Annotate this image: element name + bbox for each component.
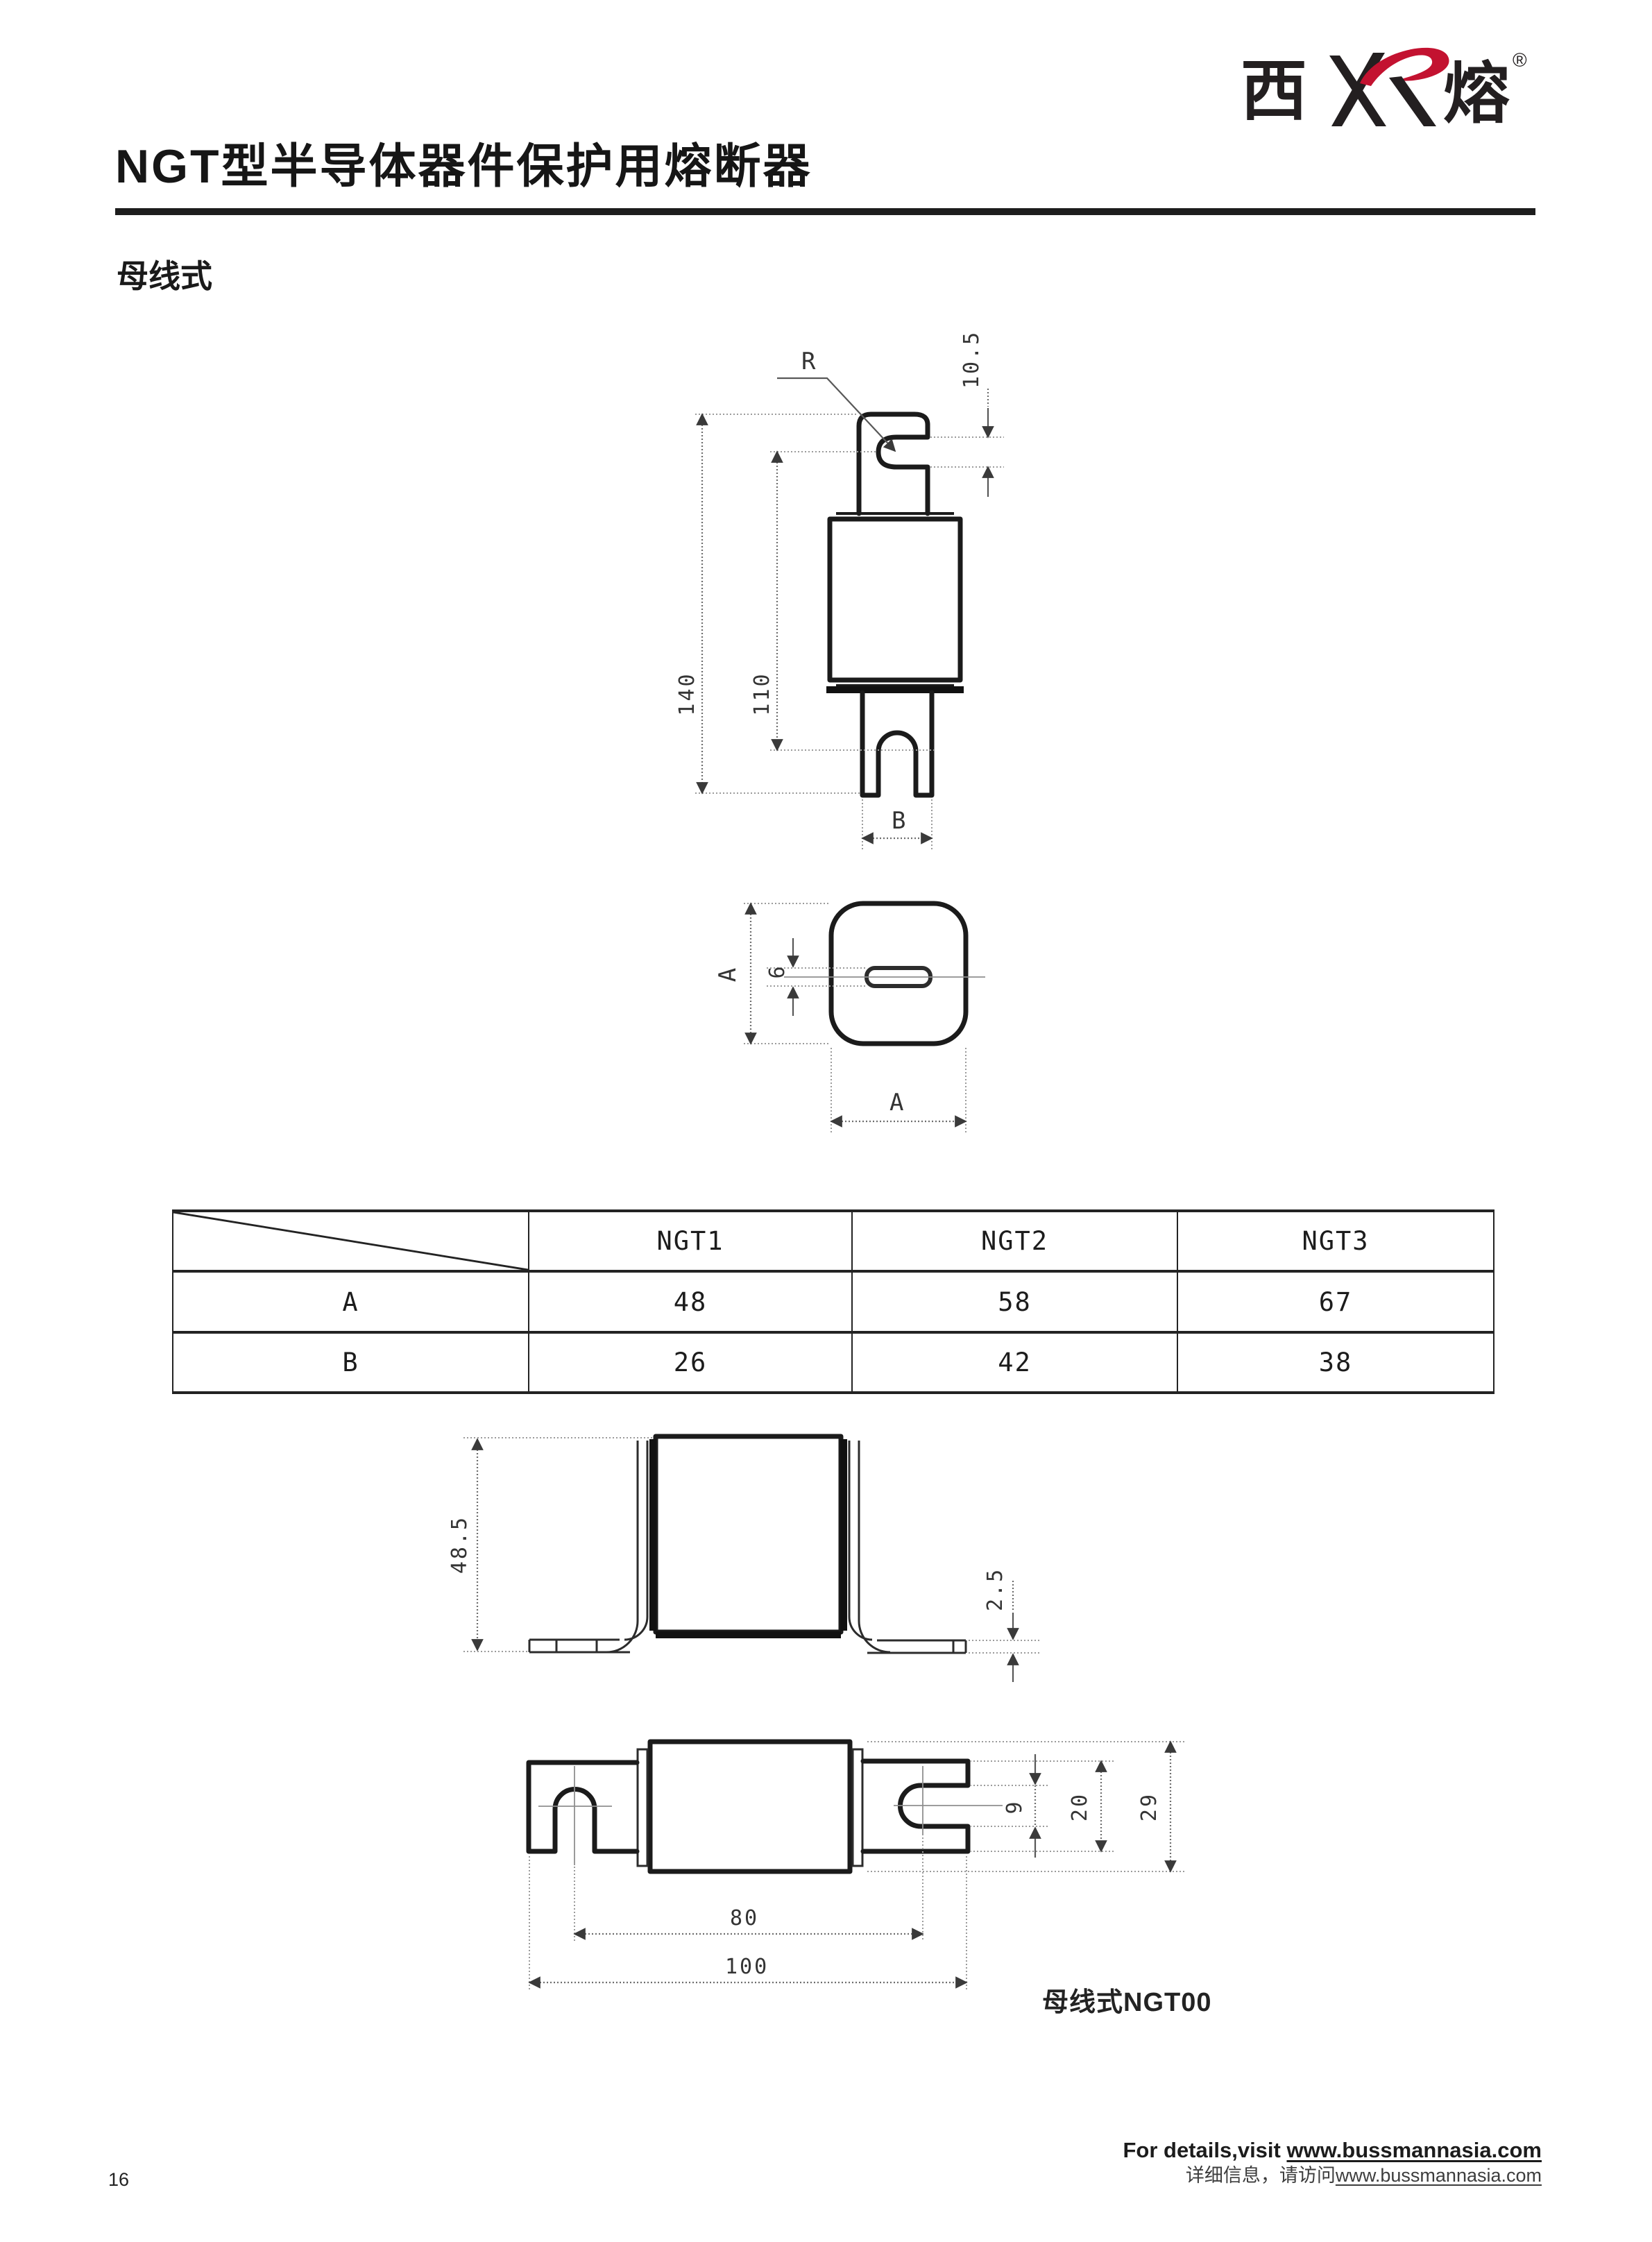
table-cell: 38 xyxy=(1177,1332,1494,1393)
catalog-page: 西 熔 ® NGT型半导体器件保护用熔断器 母线式 R xyxy=(0,0,1652,2242)
logo-r-leg xyxy=(1389,76,1436,126)
figure-bracket-view: 48.5 2.5 xyxy=(430,1416,1055,1693)
dim-label-overall-length: 100 xyxy=(725,1955,769,1979)
table-row: B 26 42 38 xyxy=(173,1332,1494,1393)
dim-label-a-bottom: A xyxy=(889,1089,905,1116)
footer-cn-url[interactable]: www.bussmannasia.com xyxy=(1336,2165,1542,2186)
left-ferrule xyxy=(638,1749,647,1866)
fuse-body-front xyxy=(656,1436,841,1632)
dim-label-foot-thickness: 2.5 xyxy=(983,1568,1007,1611)
row-label: A xyxy=(173,1271,529,1332)
right-blade-outer xyxy=(859,1441,890,1652)
column-header: NGT3 xyxy=(1177,1211,1494,1271)
table-row: A 48 58 67 xyxy=(173,1271,1494,1332)
table-cell: 58 xyxy=(852,1271,1177,1332)
section-subtitle: 母线式 xyxy=(117,251,212,297)
table-cell: 48 xyxy=(529,1271,852,1332)
diagonal-header-cell xyxy=(173,1211,529,1271)
brand-logo: 西 熔 ® xyxy=(1235,39,1533,130)
right-ferrule xyxy=(853,1749,862,1866)
dim-label-overall-height: 140 xyxy=(675,672,699,715)
dim-label-blade-width: B xyxy=(892,807,907,835)
logo-xr-mark xyxy=(1329,48,1449,126)
figure-caption: 母线式NGT00 xyxy=(1042,1980,1211,2019)
column-header: NGT2 xyxy=(852,1211,1177,1271)
table-cell: 67 xyxy=(1177,1271,1494,1332)
dim-label-slot-width: 6 xyxy=(765,964,790,978)
dim-label-body-height: 29 xyxy=(1137,1792,1161,1821)
dim-label-a-side: A xyxy=(714,967,742,982)
figure-ngt00-side-view: 9 20 29 80 100 xyxy=(472,1686,1249,2019)
dim-label-notch-span: 80 xyxy=(730,1906,759,1930)
dim-label-bracket-height: 48.5 xyxy=(448,1515,472,1574)
column-header: NGT1 xyxy=(529,1211,852,1271)
row-label: B xyxy=(173,1332,529,1393)
footer-line-cn: 详细信息，请访问www.bussmannasia.com xyxy=(1123,2164,1542,2188)
page-title: NGT型半导体器件保护用熔断器 xyxy=(115,128,812,196)
table-cell: 26 xyxy=(529,1332,852,1393)
top-view-body xyxy=(831,903,966,1044)
fuse-bottom-blade xyxy=(862,693,932,795)
figure-side-and-top-view: R 10.5 140 110 B A xyxy=(333,319,1068,1152)
dim-label-inner-height: 110 xyxy=(750,672,774,715)
dimension-table: NGT1 NGT2 NGT3 A 48 58 67 B 26 42 38 xyxy=(172,1209,1495,1394)
left-blade-inner xyxy=(624,1441,647,1640)
dim-label-notch-height: 10.5 xyxy=(960,330,984,389)
registered-mark: ® xyxy=(1513,49,1527,71)
logo-char-rong: 熔 xyxy=(1443,57,1510,130)
dim-label-tab-height: 20 xyxy=(1068,1792,1092,1821)
dim-label-radius: R xyxy=(801,348,817,375)
fuse-top-blade xyxy=(859,414,928,513)
fuse-body-horizontal xyxy=(650,1742,850,1871)
right-blade-inner xyxy=(849,1441,872,1640)
left-blade-outer xyxy=(606,1441,638,1652)
page-number: 16 xyxy=(108,2169,129,2191)
dim-label-slot-width: 9 xyxy=(1003,1799,1027,1814)
table-cell: 42 xyxy=(852,1332,1177,1393)
footer-line-en: For details,visit www.bussmannasia.com xyxy=(1123,2137,1542,2164)
fuse-body xyxy=(830,519,960,680)
footer-en-url[interactable]: www.bussmannasia.com xyxy=(1286,2138,1542,2162)
left-tab xyxy=(529,1763,637,1851)
footer-en-prefix: For details,visit xyxy=(1123,2138,1286,2162)
table-header-row: NGT1 NGT2 NGT3 xyxy=(173,1211,1494,1271)
right-tab xyxy=(863,1761,968,1851)
diagonal-line xyxy=(173,1212,528,1270)
footer-cn-prefix: 详细信息，请访问 xyxy=(1186,2165,1336,2186)
title-rule xyxy=(115,208,1535,215)
page-footer: For details,visit www.bussmannasia.com 详… xyxy=(1123,2137,1542,2188)
logo-char-west: 西 xyxy=(1241,54,1307,128)
